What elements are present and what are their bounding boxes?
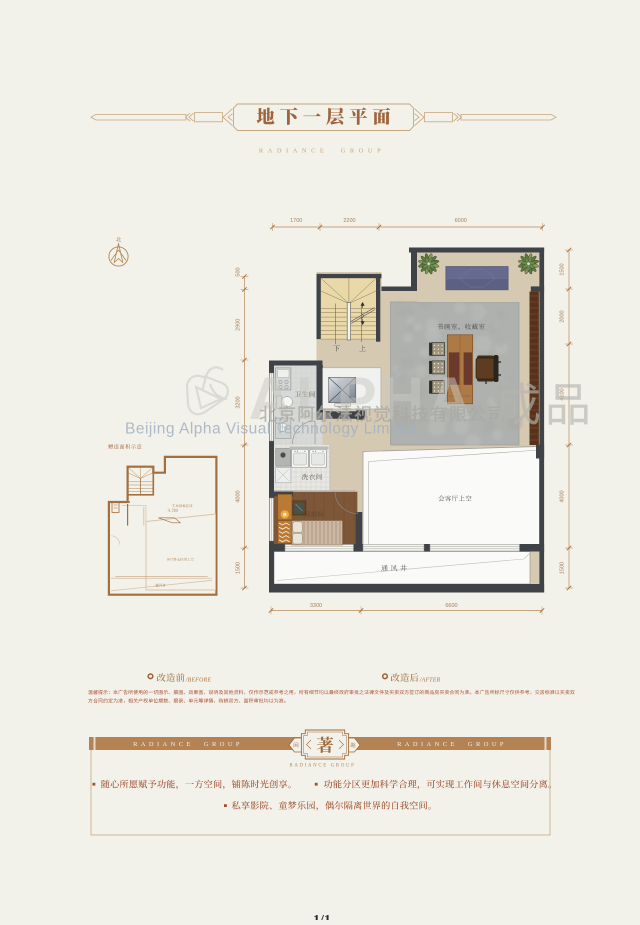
svg-text:/AFTER: /AFTER — [419, 678, 441, 684]
svg-text:2900: 2900 — [236, 319, 242, 331]
svg-text:Beijing Alpha Visual Technolog: Beijing Alpha Visual Technology Limited — [125, 421, 417, 438]
svg-text:6000: 6000 — [455, 218, 467, 224]
svg-text:RADIANCE GROUP: RADIANCE GROUP — [397, 741, 507, 748]
svg-text:4000: 4000 — [236, 490, 242, 502]
svg-text:/BEFORE: /BEFORE — [185, 678, 212, 684]
svg-text:4000: 4000 — [560, 490, 566, 502]
svg-text:1500: 1500 — [560, 562, 566, 574]
svg-text:2200: 2200 — [343, 218, 355, 224]
svg-text:2000: 2000 — [560, 310, 566, 322]
svg-text:6600: 6600 — [445, 603, 457, 609]
svg-text:1700: 1700 — [290, 218, 302, 224]
svg-text:3200: 3200 — [236, 396, 242, 408]
svg-text:1500: 1500 — [560, 263, 566, 275]
svg-text:RADIANCE GROUP: RADIANCE GROUP — [289, 764, 355, 769]
svg-text:1500: 1500 — [236, 562, 242, 574]
svg-text:1/1: 1/1 — [313, 913, 331, 920]
svg-text:RADIANCE GROUP: RADIANCE GROUP — [259, 148, 385, 155]
svg-text:500: 500 — [236, 267, 242, 276]
svg-text:RADIANCE GROUP: RADIANCE GROUP — [133, 741, 243, 748]
svg-text:3300: 3300 — [310, 603, 322, 609]
